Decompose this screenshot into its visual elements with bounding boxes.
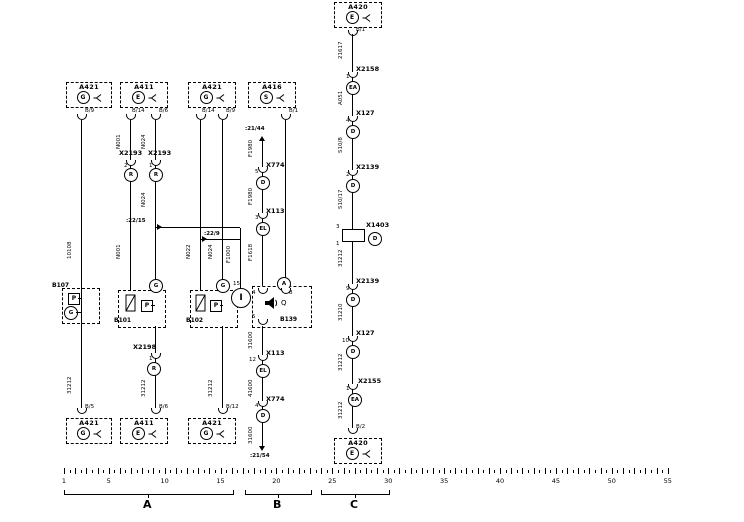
ruler-number: 1	[62, 477, 66, 485]
device-label: A421	[202, 83, 222, 91]
ruler-tick	[321, 468, 322, 474]
ruler-minor-tick	[595, 470, 596, 473]
connector-label-x774: X774	[266, 162, 285, 169]
ruler-minor-tick	[327, 470, 328, 473]
connector-pin-icon	[126, 160, 136, 166]
connector-pin-icon	[77, 114, 87, 120]
wire	[151, 305, 155, 306]
ruler: 1510152025303540455055	[60, 466, 685, 488]
ruler-number: 50	[608, 477, 616, 485]
ruler-tick	[86, 468, 87, 474]
connector-code-circle: D	[346, 293, 360, 307]
ruler-tick	[344, 468, 345, 474]
pin-label: B/6	[159, 108, 168, 114]
wire	[220, 305, 223, 306]
connector-code-circle: D	[346, 125, 360, 139]
ruler-minor-tick	[215, 470, 216, 473]
wire-code: N001	[116, 244, 122, 259]
wiring-diagram-canvas: A421 G A411 E A421 G A416 S A420 E A421 …	[0, 0, 744, 522]
ruler-minor-tick	[606, 470, 607, 473]
wire-code: S10/8	[338, 137, 344, 153]
connector-pin-icon	[348, 116, 358, 122]
connector-pin-icon	[258, 355, 268, 361]
wire	[155, 120, 156, 290]
arrow-down-icon	[259, 446, 265, 451]
connector-code-circle: EA	[348, 393, 362, 407]
wire	[81, 120, 82, 412]
bracket-end	[389, 490, 390, 495]
ruler-minor-tick	[528, 470, 529, 473]
ruler-tick	[455, 468, 456, 474]
wire-code: 41600	[248, 380, 254, 398]
wire-code: 31600	[248, 332, 254, 350]
connector-label-x2158: X2158	[356, 66, 379, 73]
ruler-tick	[120, 468, 121, 474]
ruler-minor-tick	[137, 470, 138, 473]
ruler-minor-tick	[640, 470, 641, 473]
wire	[240, 228, 241, 288]
ruler-minor-tick	[439, 470, 440, 473]
ruler-tick	[165, 468, 166, 474]
ruler-minor-tick	[193, 470, 194, 473]
speaker-icon	[264, 297, 279, 310]
connector-code-circle: D	[346, 345, 360, 359]
device-code-circle: S	[260, 91, 273, 104]
ruler-tick	[534, 468, 535, 474]
wire-code: 31600	[248, 427, 254, 445]
ruler-tick	[444, 468, 445, 474]
device-code-circle: G	[200, 427, 213, 440]
ruler-tick	[388, 468, 389, 474]
connector-pin-icon	[348, 72, 358, 78]
connector-pin-icon	[348, 384, 358, 390]
bracket-end	[233, 490, 234, 495]
ruler-tick	[377, 468, 378, 474]
ruler-tick	[634, 468, 635, 474]
ruler-minor-tick	[506, 470, 507, 473]
ruler-tick	[176, 468, 177, 474]
ruler-minor-tick	[316, 470, 317, 473]
pin-label: B/2	[356, 424, 365, 430]
ruler-minor-tick	[461, 470, 462, 473]
plug-icon	[215, 429, 225, 439]
device-label: A416	[262, 83, 282, 91]
connector-pin-icon	[126, 114, 136, 120]
connector-code-circle: EA	[346, 81, 360, 95]
device-box-a420-top: A420 E	[334, 2, 382, 28]
connector-code-circle: D	[346, 179, 360, 193]
ruler-minor-tick	[450, 470, 451, 473]
ruler-tick	[109, 468, 110, 474]
connector-label-x2198: X2198	[133, 344, 156, 351]
ruler-tick	[612, 468, 613, 474]
ruler-tick	[198, 468, 199, 474]
wire-code: N024	[141, 134, 147, 149]
device-code-circle: E	[346, 11, 359, 24]
ruler-minor-tick	[394, 470, 395, 473]
connector-label-x1403: X1403	[366, 222, 389, 229]
ruler-number: 10	[160, 477, 168, 485]
wire	[285, 120, 286, 286]
ruler-tick	[310, 468, 311, 474]
resistor-icon	[194, 293, 207, 313]
connector-label-x2155: X2155	[358, 378, 381, 385]
device-label: A420	[348, 3, 368, 11]
connector-code-circle: D	[368, 232, 382, 246]
wire-code: 21617	[338, 42, 344, 60]
device-box-a420-bottom: A420 E	[334, 438, 382, 464]
connector-label-x2193: X2193	[119, 150, 142, 157]
bracket-end	[321, 490, 322, 495]
sensor-symbol: P	[210, 300, 222, 312]
wire	[78, 298, 82, 299]
connector-code-circle: EL	[256, 222, 270, 236]
plug-icon	[92, 93, 102, 103]
inline-connector-body	[342, 229, 365, 242]
ruler-minor-tick	[651, 470, 652, 473]
ruler-tick	[332, 468, 333, 474]
connector-pin-icon	[258, 401, 268, 407]
plug-icon	[361, 449, 371, 459]
pin-label: B/6	[159, 404, 168, 410]
connector-pin-icon	[258, 213, 268, 219]
device-code-circle: E	[346, 447, 359, 460]
wire-code: 31212	[338, 250, 344, 268]
ruler-minor-tick	[405, 470, 406, 473]
connector-pin-icon	[348, 170, 358, 176]
connector-pin-icon	[258, 167, 268, 173]
wire-code: F1000	[226, 246, 232, 263]
ruler-number: 5	[107, 477, 111, 485]
ruler-tick	[221, 468, 222, 474]
ruler-minor-tick	[92, 470, 93, 473]
ruler-number: 15	[216, 477, 224, 485]
ruler-tick	[545, 468, 546, 474]
connector-code-circle: D	[256, 409, 270, 423]
sensor-symbol: P	[141, 300, 153, 312]
ruler-tick	[366, 468, 367, 474]
ruler-tick	[645, 468, 646, 474]
connector-pin-icon	[348, 336, 358, 342]
ruler-minor-tick	[539, 470, 540, 473]
arrow-right-icon	[202, 236, 207, 242]
ruler-minor-tick	[159, 470, 160, 473]
ruler-minor-tick	[125, 470, 126, 473]
ruler-tick	[511, 468, 512, 474]
bracket-end	[311, 490, 312, 495]
ruler-minor-tick	[237, 470, 238, 473]
ruler-tick	[142, 468, 143, 474]
wire	[155, 227, 240, 228]
ruler-tick	[578, 468, 579, 474]
wire-code: F1980	[248, 188, 254, 205]
ruler-minor-tick	[617, 470, 618, 473]
device-code-circle: G	[77, 91, 90, 104]
horn-symbol: Q	[281, 300, 287, 306]
device-code-circle: E	[132, 427, 145, 440]
connector-pin-icon	[151, 114, 161, 120]
device-box-a411-bottom: A411 E	[120, 418, 168, 444]
connector-pin-icon	[348, 284, 358, 290]
pin-label: 12	[249, 357, 256, 363]
ruler-tick	[153, 468, 154, 474]
ruler-tick	[355, 468, 356, 474]
ruler-tick	[489, 468, 490, 474]
ruler-tick	[522, 468, 523, 474]
connector-label-x113: X113	[266, 350, 285, 357]
wire-code: N024	[208, 244, 214, 259]
wire-code: F1980	[248, 140, 254, 157]
ruler-minor-tick	[494, 470, 495, 473]
ruler-minor-tick	[70, 470, 71, 473]
connector-label-x2193: X2193	[148, 150, 171, 157]
device-box-a421-bottom-left: A421 G	[66, 418, 112, 444]
ruler-minor-tick	[483, 470, 484, 473]
wire	[222, 326, 223, 410]
ruler-minor-tick	[629, 470, 630, 473]
ruler-number: 35	[440, 477, 448, 485]
ruler-tick	[411, 468, 412, 474]
wire	[262, 326, 263, 446]
sensor-symbol: P	[68, 293, 80, 305]
pin-label: 15	[233, 281, 240, 287]
device-box-a421-bottom-right: A421 G	[188, 418, 236, 444]
pin-label: B/9	[85, 108, 94, 114]
ruler-tick	[243, 468, 244, 474]
ruler-minor-tick	[248, 470, 249, 473]
ruler-minor-tick	[81, 470, 82, 473]
ruler-minor-tick	[427, 470, 428, 473]
ruler-tick	[187, 468, 188, 474]
ruler-number: 55	[664, 477, 672, 485]
ruler-tick	[556, 468, 557, 474]
plug-icon	[275, 93, 285, 103]
ruler-tick	[601, 468, 602, 474]
ruler-tick	[422, 468, 423, 474]
wire-code: N024	[141, 192, 147, 207]
ruler-number: 45	[552, 477, 560, 485]
device-code-circle: E	[132, 91, 145, 104]
ruler-number: 30	[384, 477, 392, 485]
ruler-tick	[399, 468, 400, 474]
wire-code: 31210	[338, 304, 344, 322]
ruler-minor-tick	[103, 470, 104, 473]
crossref-label: :21/44	[245, 126, 265, 132]
ruler-tick	[478, 468, 479, 474]
connector-label-x113: X113	[266, 208, 285, 215]
ruler-tick	[623, 468, 624, 474]
device-label: A421	[79, 419, 99, 427]
section-label-b: B	[273, 499, 281, 511]
wire-code: 10108	[67, 242, 73, 260]
wire-code: 31212	[141, 380, 147, 398]
device-label: A420	[348, 439, 368, 447]
pin-label: 4	[252, 290, 256, 296]
ruler-tick	[657, 468, 658, 474]
ruler-tick	[288, 468, 289, 474]
ruler-tick	[668, 468, 669, 474]
device-code-circle: G	[77, 427, 90, 440]
ruler-tick	[209, 468, 210, 474]
ruler-tick	[75, 468, 76, 474]
pin-label: 5	[252, 314, 256, 320]
ruler-minor-tick	[181, 470, 182, 473]
ruler-minor-tick	[148, 470, 149, 473]
connector-code-circle: R	[124, 168, 138, 182]
device-label: A421	[202, 419, 222, 427]
connector-pin-icon	[196, 114, 206, 120]
wire-code: 31212	[67, 377, 73, 395]
connector-label-x774: X774	[266, 396, 285, 403]
wire-code: A051	[338, 91, 344, 105]
ruler-minor-tick	[226, 470, 227, 473]
pin-label: B/1	[289, 108, 298, 114]
device-label: A411	[134, 83, 154, 91]
resistor-icon	[124, 293, 137, 313]
component-code-circle: G	[149, 279, 163, 293]
ruler-minor-tick	[662, 470, 663, 473]
pin-label: B/1	[356, 27, 365, 33]
ruler-minor-tick	[472, 470, 473, 473]
device-label: A411	[134, 419, 154, 427]
component-code-circle: G	[216, 279, 230, 293]
section-label-c: C	[350, 499, 358, 511]
pin-label: 3	[336, 224, 340, 230]
wire-code: 31212	[338, 402, 344, 420]
ruler-tick	[299, 468, 300, 474]
ruler-minor-tick	[573, 470, 574, 473]
device-box-a421-top-left: A421 G	[66, 82, 112, 108]
connector-code-circle: R	[147, 362, 161, 376]
wire	[222, 120, 223, 290]
plug-icon	[92, 429, 102, 439]
connector-pin-icon	[281, 114, 291, 120]
crossref-label: :21/54	[250, 453, 270, 459]
arrow-right-icon	[157, 224, 162, 230]
ruler-minor-tick	[416, 470, 417, 473]
ruler-tick	[567, 468, 568, 474]
ruler-number: 20	[272, 477, 280, 485]
section-label-a: A	[143, 499, 152, 511]
ruler-minor-tick	[170, 470, 171, 473]
connector-label-x2139: X2139	[356, 164, 379, 171]
component-label-b139: B139	[280, 316, 297, 323]
connector-label-x2139: X2139	[356, 278, 379, 285]
wire	[130, 120, 131, 290]
ruler-tick	[131, 468, 132, 474]
wire	[200, 120, 201, 290]
device-box-a411-top: A411 E	[120, 82, 168, 108]
wire-code: S10/17	[338, 190, 344, 209]
ruler-tick	[276, 468, 277, 474]
ruler-tick	[433, 468, 434, 474]
plug-icon	[147, 93, 157, 103]
device-box-a416-top: A416 S	[248, 82, 296, 108]
pin-label: B/14	[202, 108, 215, 114]
ruler-minor-tick	[114, 470, 115, 473]
ruler-minor-tick	[371, 470, 372, 473]
ruler-minor-tick	[383, 470, 384, 473]
ruler-minor-tick	[338, 470, 339, 473]
plug-icon	[215, 93, 225, 103]
ruler-minor-tick	[304, 470, 305, 473]
plug-icon	[147, 429, 157, 439]
ruler-tick	[466, 468, 467, 474]
ruler-number: 40	[496, 477, 504, 485]
ruler-minor-tick	[282, 470, 283, 473]
plug-icon	[361, 13, 371, 23]
ruler-minor-tick	[271, 470, 272, 473]
ruler-tick	[64, 468, 65, 474]
ruler-tick	[98, 468, 99, 474]
pin-label: B/12	[226, 404, 239, 410]
connector-pin-icon	[218, 114, 228, 120]
ruler-number: 25	[328, 477, 336, 485]
wire-code: 31212	[208, 380, 214, 398]
ruler-minor-tick	[293, 470, 294, 473]
bracket-end	[245, 490, 246, 495]
component-code-circle: G	[64, 306, 78, 320]
ruler-ticks: 1510152025303540455055	[60, 466, 685, 488]
connector-code-circle: D	[256, 176, 270, 190]
ruler-minor-tick	[562, 470, 563, 473]
ruler-minor-tick	[517, 470, 518, 473]
wire	[76, 312, 82, 313]
ruler-tick	[589, 468, 590, 474]
connector-label-x127: X127	[356, 330, 375, 337]
connector-code-circle: R	[149, 168, 163, 182]
device-label: A421	[79, 83, 99, 91]
ruler-minor-tick	[260, 470, 261, 473]
ruler-tick	[265, 468, 266, 474]
connector-label-x127: X127	[356, 110, 375, 117]
pin-label: B/14	[132, 108, 145, 114]
ruler-minor-tick	[550, 470, 551, 473]
pin-label: B/9	[226, 108, 235, 114]
wire-code: F1618	[248, 244, 254, 261]
pin-label: 1	[336, 241, 340, 247]
device-box-a421-top-right: A421 G	[188, 82, 236, 108]
ruler-tick	[254, 468, 255, 474]
pin-label: B/5	[85, 404, 94, 410]
connector-code-circle: EL	[256, 364, 270, 378]
wire-code: N022	[186, 244, 192, 259]
ruler-tick	[500, 468, 501, 474]
ruler-minor-tick	[360, 470, 361, 473]
ruler-tick	[232, 468, 233, 474]
bracket-end	[64, 490, 65, 495]
connector-pin-icon	[151, 353, 161, 359]
wire-code: N001	[116, 134, 122, 149]
wire-code: 31212	[338, 354, 344, 372]
device-code-circle: G	[200, 91, 213, 104]
component-label-i: I	[231, 288, 251, 308]
ruler-minor-tick	[584, 470, 585, 473]
ruler-minor-tick	[204, 470, 205, 473]
ruler-minor-tick	[349, 470, 350, 473]
crossref-label: :22/15	[126, 218, 146, 224]
connector-pin-icon	[151, 160, 161, 166]
